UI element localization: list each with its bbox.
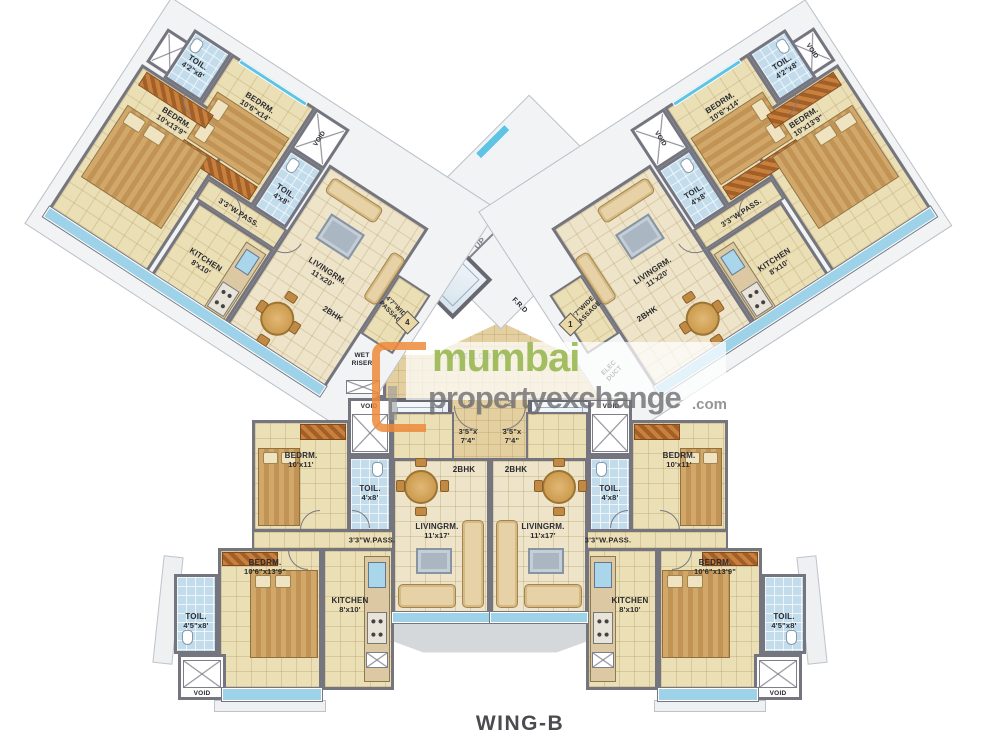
passage-label: 3'3"W.PASS. — [585, 536, 632, 545]
brand-tld: .com — [692, 396, 727, 413]
toilet-1-label: TOIL.4'x8' — [359, 474, 380, 502]
kitchen-label: KITCHEN8'x10' — [612, 586, 649, 614]
bedroom-2-label: BEDRM.10'6"x13'9" — [244, 548, 286, 576]
bedroom-1-label: BEDRM.10'x11' — [663, 441, 696, 469]
brand-bar-icon — [388, 386, 397, 420]
balcony — [490, 612, 588, 623]
wing-title: WING-B — [420, 712, 620, 736]
passage-label: 3'3"W.PASS. — [349, 536, 396, 545]
balcony — [658, 688, 758, 701]
shaft-hatch — [183, 660, 221, 688]
bhk-label: 2BHK — [453, 465, 476, 475]
shaft-hatch — [366, 652, 388, 668]
balcony — [392, 612, 490, 623]
shaft-hatch — [592, 652, 614, 668]
bhk-label: 2BHK — [505, 465, 528, 475]
brand-bracket-icon — [372, 342, 426, 432]
watermark: mumbai propertyexchange .com — [340, 334, 770, 438]
balcony — [222, 688, 322, 701]
living-room-label: LIVINGRM.11'x17' — [415, 512, 458, 540]
bedroom-2-label: BEDRM.10'6"x13'9" — [694, 548, 736, 576]
floor-plan: UP LIFT-3 F.R.D 4 1 WET RISER ELEC DUCT … — [0, 0, 1000, 750]
toilet-2-label: TOIL.4'5"x8' — [771, 602, 796, 630]
void-bottom-label: VOID — [770, 690, 787, 698]
toilet-1-label: TOIL.4'x8' — [599, 474, 620, 502]
bedroom-1-label: BEDRM.10'x11' — [285, 441, 318, 469]
brand-name: mumbai — [432, 336, 579, 381]
brand-name-2: propertyexchange — [428, 380, 681, 416]
toilet-2-label: TOIL.4'5"x8' — [183, 602, 208, 630]
stair-window — [475, 124, 511, 160]
void-bottom-label: VOID — [194, 690, 211, 698]
living-room-label: LIVINGRM.11'x17' — [521, 512, 564, 540]
kitchen-label: KITCHEN8'x10' — [332, 586, 369, 614]
shaft-hatch — [759, 660, 797, 688]
